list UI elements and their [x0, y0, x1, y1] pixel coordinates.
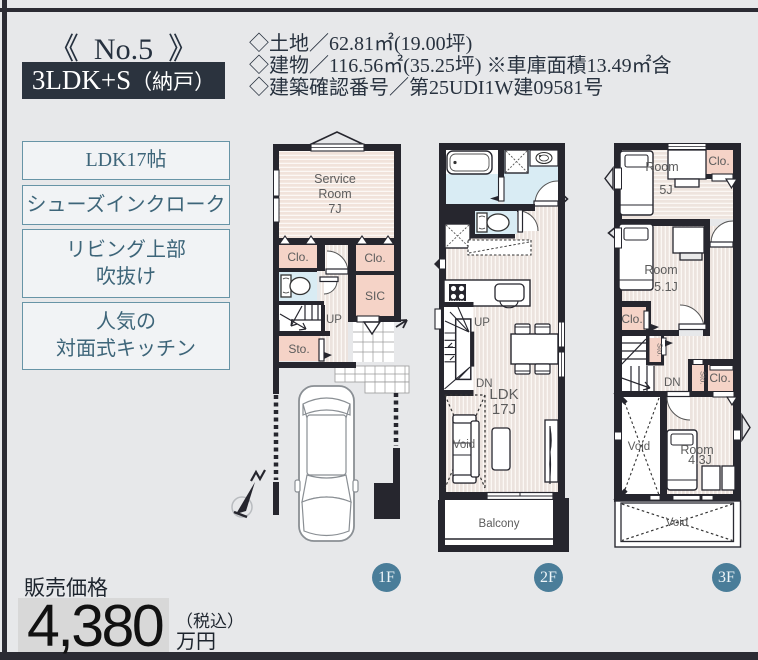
- svg-text:Clo.: Clo.: [621, 312, 642, 326]
- svg-text:Clo.: Clo.: [709, 371, 730, 385]
- svg-text:Void: Void: [453, 439, 475, 451]
- svg-text:Sto.: Sto.: [288, 342, 309, 356]
- svg-text:7J: 7J: [328, 202, 341, 216]
- svg-text:Service: Service: [314, 172, 356, 186]
- svg-text:Clo.: Clo.: [287, 250, 308, 264]
- svg-text:5J: 5J: [659, 183, 672, 197]
- svg-text:SIC: SIC: [365, 289, 385, 303]
- svg-text:Clo.: Clo.: [364, 251, 385, 265]
- svg-text:Room: Room: [645, 160, 678, 174]
- svg-text:17J: 17J: [492, 401, 516, 418]
- svg-text:Clo.: Clo.: [708, 154, 729, 168]
- svg-text:4.3J: 4.3J: [688, 453, 712, 467]
- svg-text:UP: UP: [474, 317, 490, 329]
- svg-text:Void: Void: [628, 441, 650, 453]
- svg-text:Sto.: Sto.: [656, 343, 665, 356]
- svg-text:Balcony: Balcony: [479, 518, 520, 530]
- svg-text:Room: Room: [318, 187, 351, 201]
- svg-text:UP: UP: [326, 314, 342, 326]
- svg-text:DN: DN: [476, 378, 493, 390]
- svg-text:DN: DN: [664, 377, 681, 389]
- svg-text:Room: Room: [644, 263, 677, 277]
- svg-text:5.1J: 5.1J: [654, 280, 678, 294]
- svg-text:Sto.: Sto.: [699, 371, 708, 384]
- svg-text:Void: Void: [666, 517, 688, 529]
